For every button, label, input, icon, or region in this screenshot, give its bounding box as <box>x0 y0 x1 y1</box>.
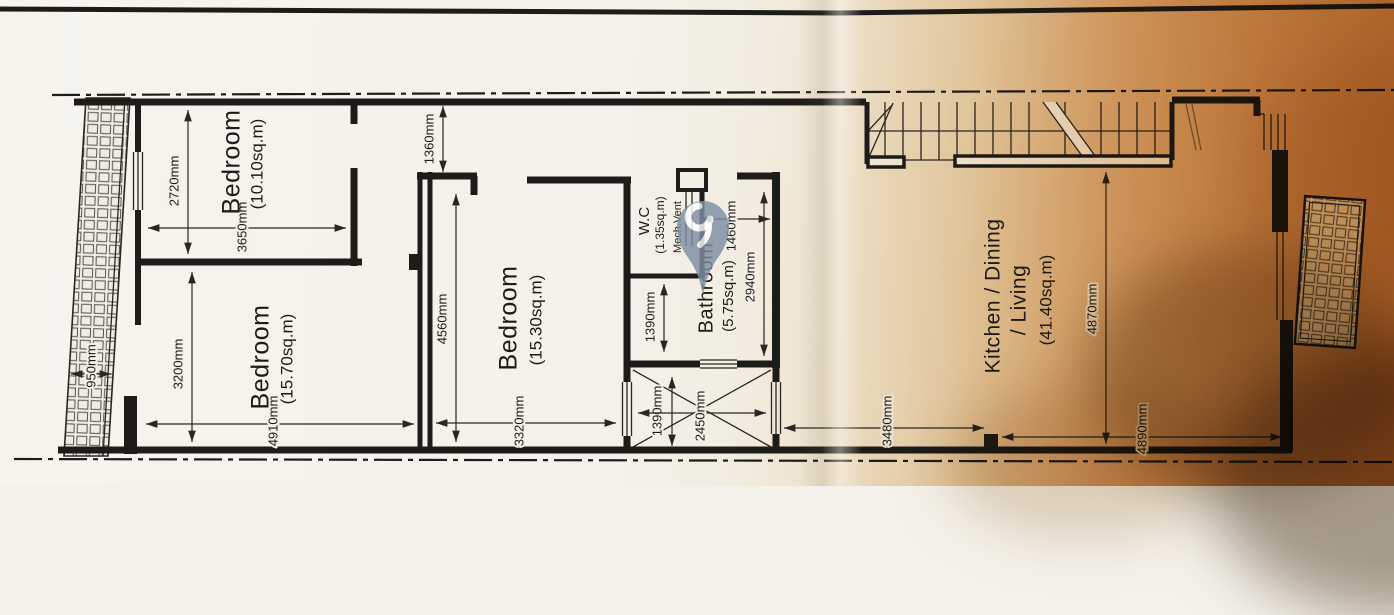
dimension-bed3-height: 4560mm <box>434 194 456 442</box>
stair-handrail-left <box>868 157 904 167</box>
dimension-label: 2720mm <box>166 156 181 207</box>
boundary-dashdot-top <box>52 90 1394 95</box>
window-symbol-right <box>1264 114 1285 150</box>
wall-right-upper <box>1272 150 1288 232</box>
bedroom2-label: Bedroom <box>247 305 275 410</box>
balcony-left-tiles <box>64 98 130 456</box>
bathroom-area: (5.75sq.m) <box>720 260 737 332</box>
bedroom3-label: Bedroom <box>495 266 523 371</box>
staircase <box>867 102 1172 167</box>
dimension-bed2-height: 3200mm <box>170 272 192 442</box>
dimension-bed3-offset: 1360mm <box>421 106 443 172</box>
bedroom2-area: (15.70sq.m) <box>277 314 296 405</box>
wall-bedroom3-top-left <box>417 176 477 195</box>
right-side-structure <box>1172 100 1365 452</box>
dimension-bath-height: 2940mm <box>742 192 764 356</box>
dimension-label: 2940mm <box>742 252 757 303</box>
bedroom1-label: Bedroom <box>218 110 246 215</box>
bedroom1-area: (10.10sq.m) <box>247 119 266 210</box>
wall-left-pier <box>124 396 137 454</box>
dimension-label: 4870mm <box>1084 284 1099 335</box>
dimension-label: 1390mm <box>642 292 657 343</box>
dimension-label: 3320mm <box>511 396 526 447</box>
balcony-right <box>1295 196 1365 348</box>
window-symbol-shaft-right <box>772 382 781 434</box>
floor-plan-drawing: 950mm <box>0 0 1394 486</box>
mech-vent-duct <box>678 170 706 190</box>
dimension-bed1-height: 2720mm <box>166 110 188 254</box>
wc-label: W.C <box>636 207 653 235</box>
kitchen-label-line2: / Living <box>1008 265 1031 336</box>
wc-area: (1.35sq.m) <box>653 196 667 253</box>
dimension-kitchen-left-width: 3480mm <box>784 396 984 447</box>
dimension-balcony-width-label: 950mm <box>83 344 98 387</box>
wall-bottom-jog <box>984 434 998 452</box>
dimension-bath-depth: 1390mm <box>642 284 664 352</box>
photo-paper-edge-line-right <box>838 6 1394 13</box>
kitchen-area: (41.40sq.m) <box>1036 255 1055 346</box>
stair-winder-lines <box>869 103 893 157</box>
dimension-label: 4890mm <box>1134 404 1149 455</box>
dimension-bed3-width: 3320mm <box>436 396 616 447</box>
bedroom3-area: (15.30sq.m) <box>526 275 545 366</box>
wall-right-lower <box>1280 320 1293 452</box>
dimension-label: 2450mm <box>692 391 707 442</box>
pencil-guide-lines <box>1186 104 1201 150</box>
boundary-dashdot-bottom <box>14 459 1394 462</box>
photo-paper-edge-line <box>0 9 838 13</box>
wall-jog <box>409 254 420 270</box>
balcony-left: 950mm <box>64 98 130 456</box>
dimension-label: 3200mm <box>170 339 185 390</box>
kitchen-label-line1: Kitchen / Dining <box>982 218 1005 373</box>
window-symbol-right-balcony <box>1277 232 1283 320</box>
dimension-kitchen-height: 4870mm <box>1084 172 1106 444</box>
window-symbol-bedroom1 <box>134 152 143 210</box>
stair-handrail-right <box>955 156 1171 166</box>
door-threshold-bathroom <box>700 360 737 368</box>
floor-plan-photo: { "plan": { "rooms": { "bedroom1": { "na… <box>0 0 1394 486</box>
wall-top-right <box>1172 100 1260 116</box>
dimension-label: 1360mm <box>421 114 436 165</box>
dimension-shaft-height: 1390mm <box>649 377 672 446</box>
dimension-label: 4560mm <box>434 294 449 345</box>
wall-bedroom2-bedroom3 <box>420 172 430 448</box>
dimension-label: 1390mm <box>649 386 664 437</box>
dimension-label: 3480mm <box>879 396 894 447</box>
window-symbol-shaft-left <box>623 382 632 436</box>
